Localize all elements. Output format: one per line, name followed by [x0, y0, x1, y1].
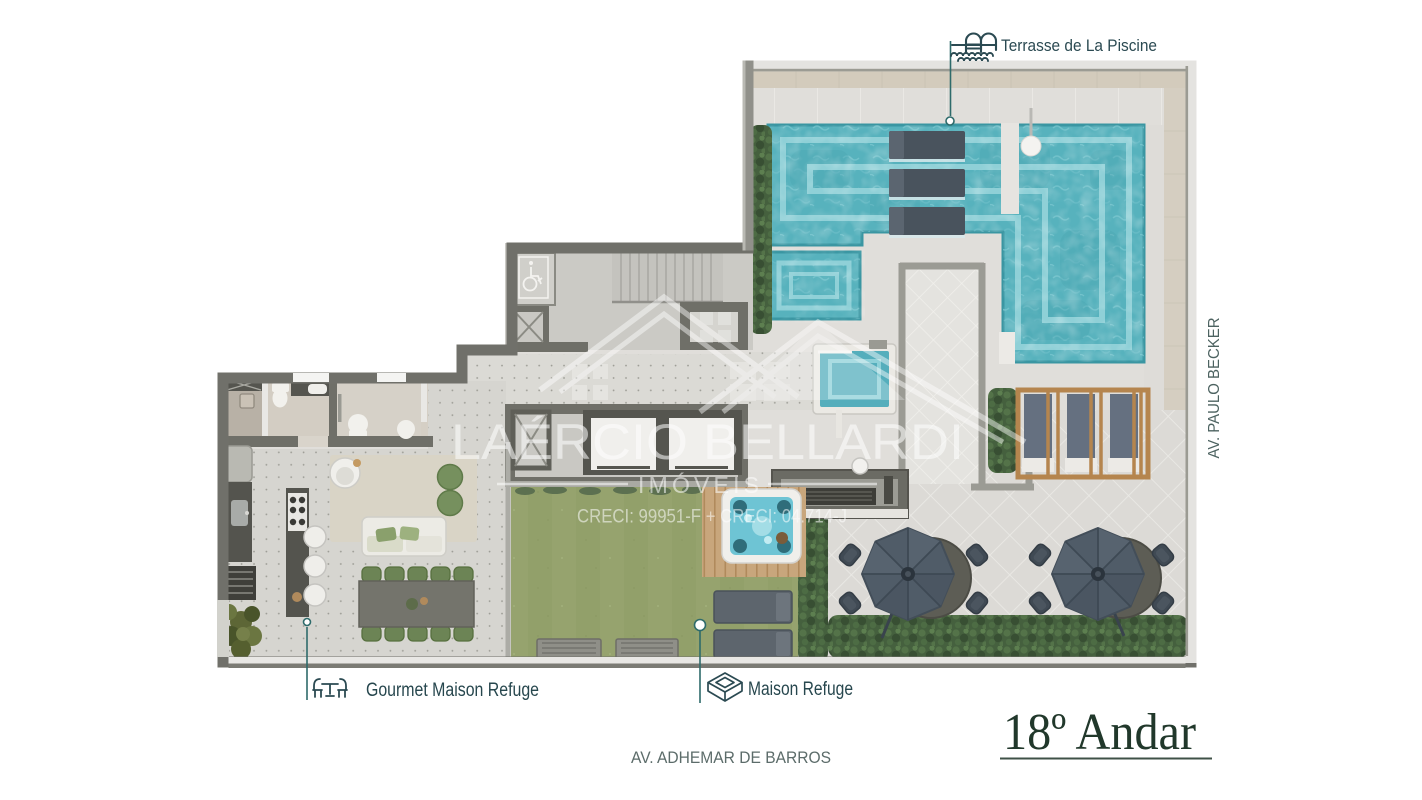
- svg-text:AV. ADHEMAR DE BARROS: AV. ADHEMAR DE BARROS: [631, 749, 831, 767]
- svg-text:Gourmet Maison Refuge: Gourmet Maison Refuge: [366, 680, 539, 701]
- svg-text:CRECI: 99951-F + CRECI: 04.714: CRECI: 99951-F + CRECI: 04.714-J: [577, 507, 847, 528]
- svg-text:AV. PAULO BECKER: AV. PAULO BECKER: [1206, 318, 1223, 459]
- svg-text:Maison Refuge: Maison Refuge: [748, 679, 853, 700]
- svg-text:LAÉRCIO BELLARDI: LAÉRCIO BELLARDI: [451, 414, 964, 470]
- svg-text:Terrasse de La Piscine: Terrasse de La Piscine: [1001, 37, 1157, 55]
- svg-text:18º Andar: 18º Andar: [1003, 704, 1196, 761]
